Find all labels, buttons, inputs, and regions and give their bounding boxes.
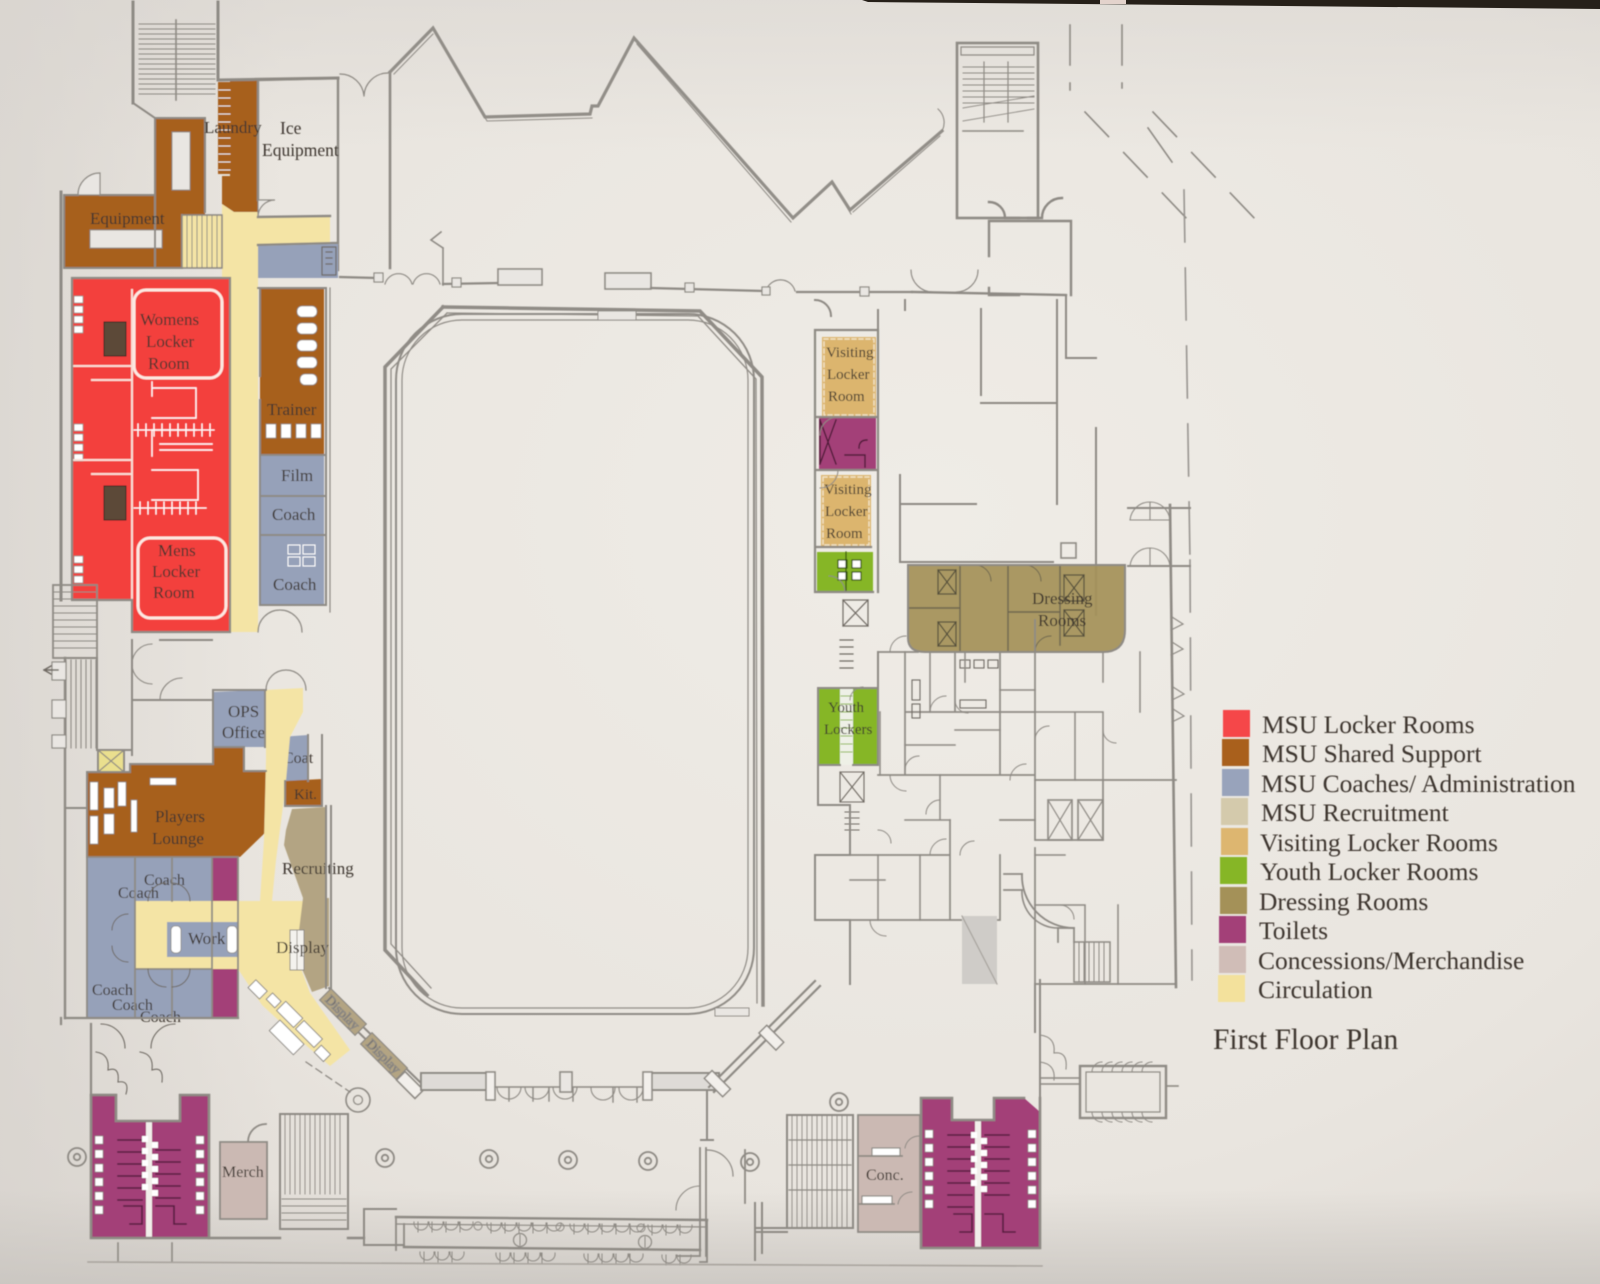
svg-text:Coach: Coach — [273, 575, 317, 594]
svg-text:Locker: Locker — [827, 367, 869, 383]
svg-text:Locker: Locker — [146, 332, 194, 351]
svg-text:First Floor Plan: First Floor Plan — [1213, 1024, 1398, 1056]
svg-text:Ice: Ice — [280, 118, 302, 138]
svg-text:Room: Room — [828, 389, 865, 405]
svg-text:Lounge: Lounge — [152, 829, 204, 848]
svg-text:Lockers: Lockers — [824, 722, 872, 738]
svg-text:Work: Work — [188, 929, 226, 948]
svg-text:Rooms: Rooms — [1038, 611, 1086, 630]
svg-text:Visiting: Visiting — [826, 345, 874, 361]
svg-text:Locker: Locker — [152, 562, 200, 581]
svg-text:Merch: Merch — [222, 1164, 264, 1181]
svg-text:Circulation: Circulation — [1258, 975, 1373, 1004]
svg-text:Youth: Youth — [828, 700, 864, 716]
svg-text:Display: Display — [276, 938, 329, 957]
svg-text:Room: Room — [148, 354, 190, 373]
svg-text:Kit.: Kit. — [294, 787, 317, 803]
svg-text:MSU Coaches/ Administration: MSU Coaches/ Administration — [1261, 769, 1576, 798]
svg-text:Room: Room — [153, 583, 195, 602]
svg-text:Dressing: Dressing — [1032, 589, 1093, 608]
svg-text:Equipment: Equipment — [90, 209, 165, 228]
svg-text:Conc.: Conc. — [866, 1167, 904, 1184]
svg-text:Coach: Coach — [118, 885, 159, 902]
svg-text:Players: Players — [155, 807, 205, 826]
svg-text:Womens: Womens — [140, 310, 199, 329]
svg-text:MSU Recruitment: MSU Recruitment — [1261, 798, 1449, 827]
svg-text:Film: Film — [281, 466, 313, 485]
svg-text:Laundry: Laundry — [204, 118, 262, 137]
svg-text:Visiting Locker Rooms: Visiting Locker Rooms — [1260, 828, 1498, 857]
svg-text:Equipment: Equipment — [262, 140, 339, 160]
svg-text:MSU Shared Support: MSU Shared Support — [1262, 739, 1482, 768]
svg-text:Toilets: Toilets — [1259, 916, 1328, 945]
svg-text:Coach: Coach — [272, 505, 316, 524]
svg-text:Youth Locker Rooms: Youth Locker Rooms — [1260, 857, 1478, 886]
svg-text:Locker: Locker — [825, 504, 867, 520]
svg-text:Trainer: Trainer — [267, 400, 317, 419]
svg-text:Dressing Rooms: Dressing Rooms — [1259, 887, 1428, 916]
svg-text:Mens: Mens — [158, 541, 196, 560]
svg-text:OPS: OPS — [228, 702, 259, 721]
svg-text:MSU Locker Rooms: MSU Locker Rooms — [1262, 710, 1475, 739]
svg-text:Office: Office — [222, 723, 265, 742]
svg-text:Concessions/Merchandise: Concessions/Merchandise — [1258, 946, 1524, 975]
svg-text:Room: Room — [826, 526, 863, 542]
svg-text:Recruiting: Recruiting — [282, 859, 354, 878]
